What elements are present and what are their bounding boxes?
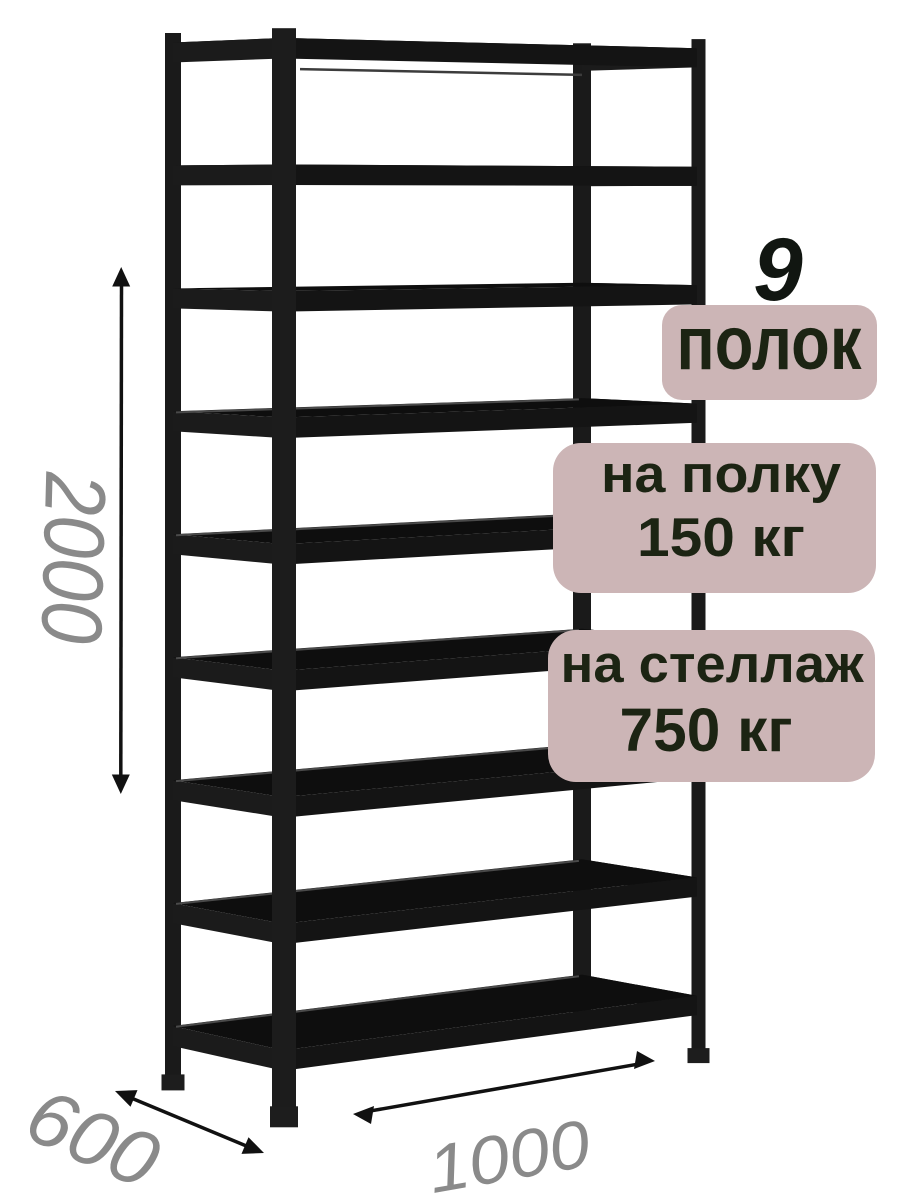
- svg-text:полок: полок: [677, 301, 863, 386]
- svg-text:2000: 2000: [23, 470, 123, 644]
- svg-text:на стеллаж: на стеллаж: [561, 635, 865, 694]
- svg-text:150 кг: 150 кг: [637, 506, 805, 568]
- svg-text:750 кг: 750 кг: [620, 696, 793, 764]
- svg-text:на полку: на полку: [601, 445, 842, 504]
